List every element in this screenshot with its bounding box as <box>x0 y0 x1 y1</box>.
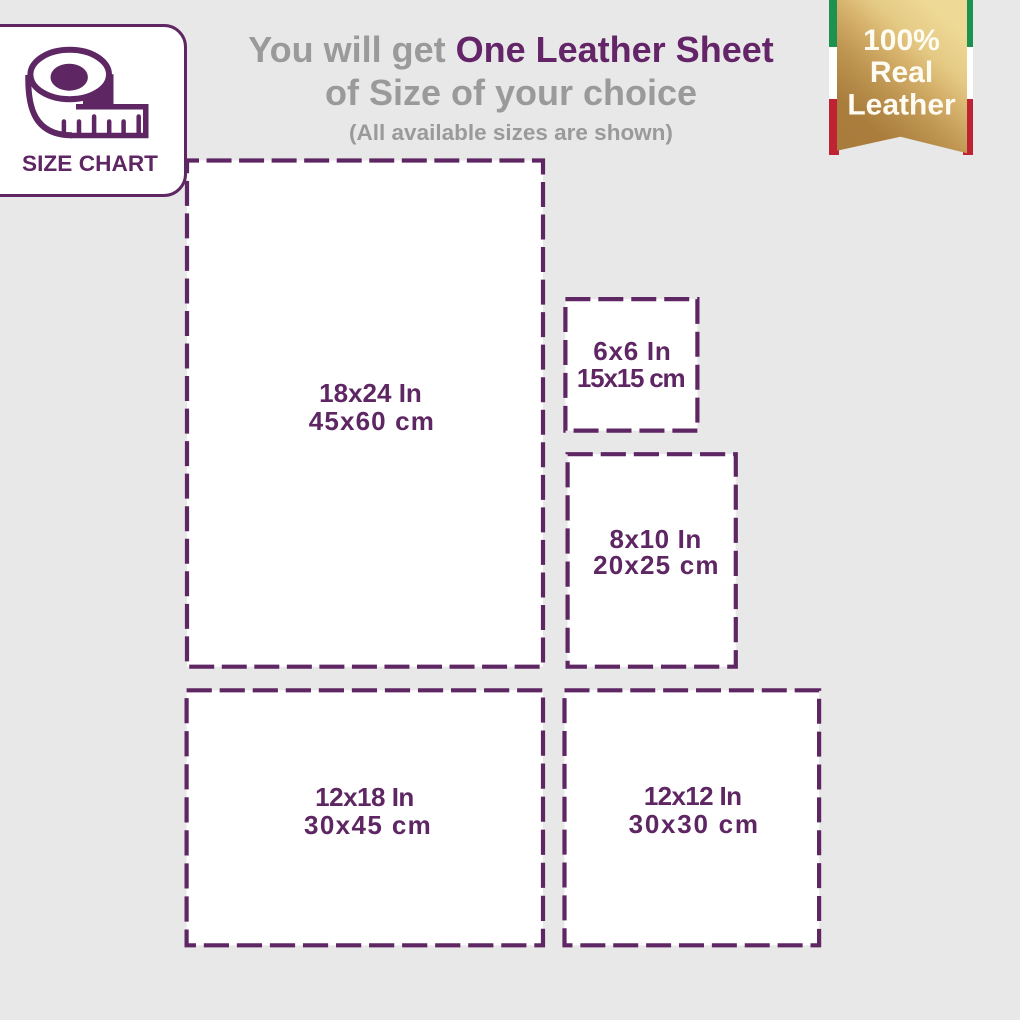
svg-text:Leather: Leather <box>847 89 956 122</box>
svg-text:100%: 100% <box>863 24 940 57</box>
svg-text:Real: Real <box>870 56 933 89</box>
